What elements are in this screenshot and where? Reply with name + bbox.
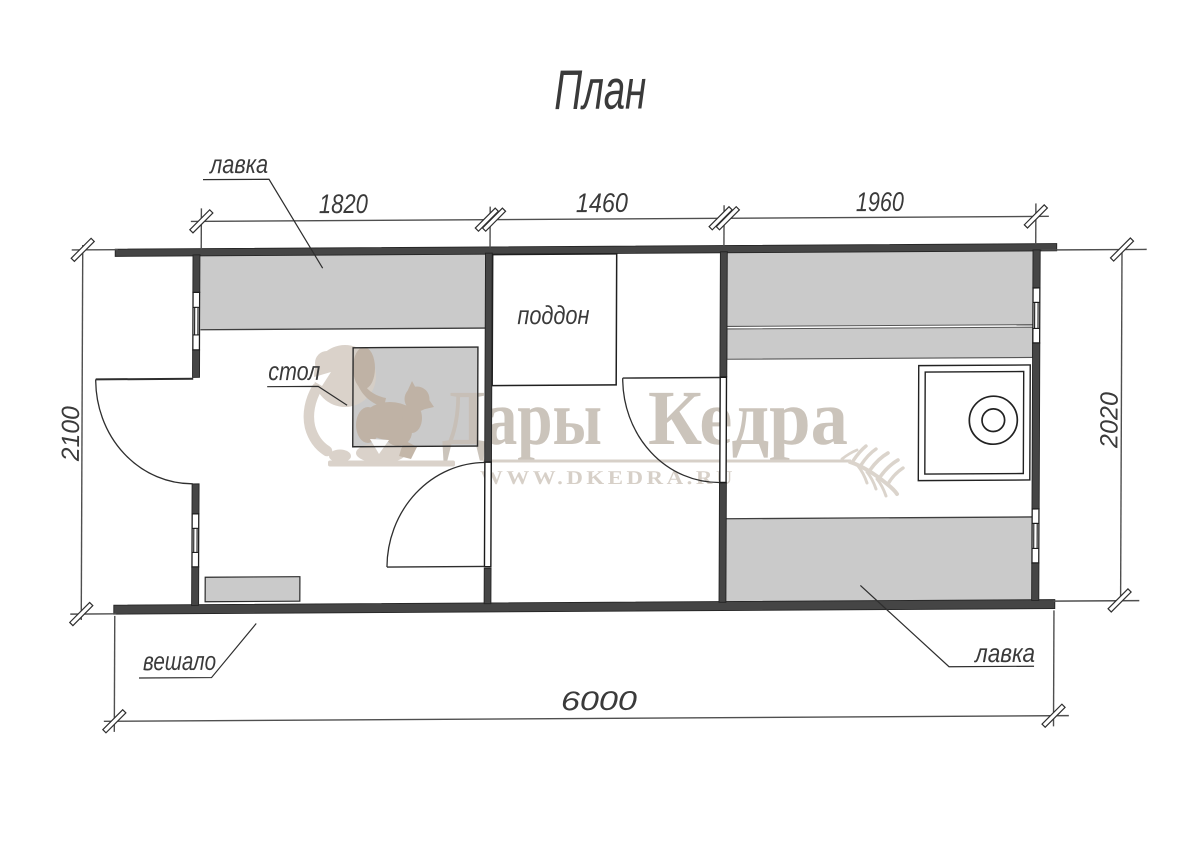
svg-text:поддон: поддон <box>517 300 589 330</box>
svg-text:Дары: Дары <box>442 374 602 461</box>
svg-text:1960: 1960 <box>856 187 904 217</box>
svg-text:Кедра: Кедра <box>648 374 848 461</box>
svg-text:лавка: лавка <box>973 638 1035 668</box>
svg-text:1460: 1460 <box>576 188 628 218</box>
svg-text:План: План <box>554 58 646 122</box>
svg-text:6000: 6000 <box>561 686 637 716</box>
svg-text:1820: 1820 <box>319 189 368 219</box>
svg-text:стол: стол <box>268 356 320 386</box>
svg-text:2100: 2100 <box>57 406 85 462</box>
svg-text:вешало: вешало <box>143 646 216 676</box>
svg-text:WWW.DKEDRA.RU: WWW.DKEDRA.RU <box>480 468 736 489</box>
svg-text:лавка: лавка <box>208 149 268 179</box>
svg-text:2020: 2020 <box>1095 392 1123 449</box>
